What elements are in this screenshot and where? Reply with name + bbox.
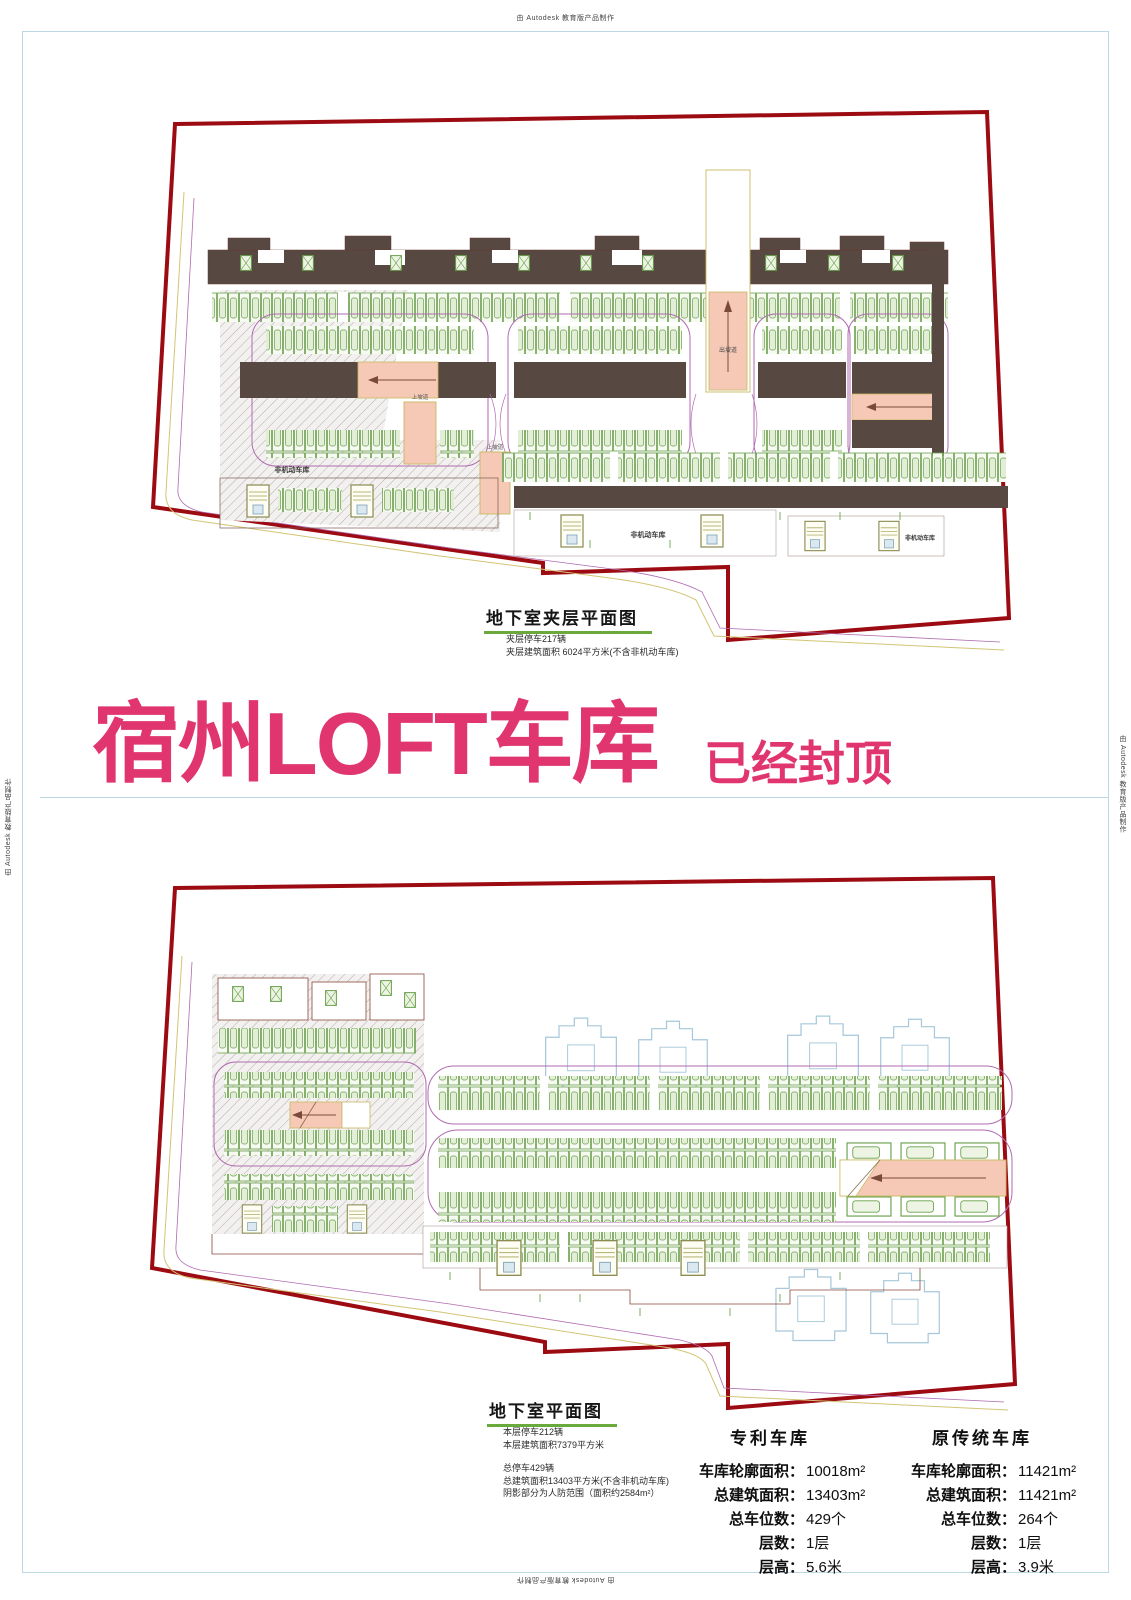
- frame-top-line: [22, 31, 1109, 32]
- autodesk-credit-top: 由 Autodesk 教育版产品制作: [0, 13, 1131, 23]
- stat-row: 总建筑面积： 11421m²: [856, 1484, 1108, 1508]
- stat-value: 264个: [1016, 1508, 1108, 1532]
- stat-label: 总建筑面积：: [856, 1484, 1016, 1508]
- basement-note-1: 本层停车212辆: [503, 1426, 604, 1439]
- stall-band-bottom: [423, 1226, 1007, 1304]
- stat-label: 层数：: [644, 1532, 804, 1556]
- project-banner-status: 已经封顶: [704, 740, 892, 787]
- parking-module-left: [240, 314, 496, 466]
- stat-label: 层高：: [644, 1556, 804, 1580]
- non-motor-label-1: 非机动车库: [275, 465, 310, 474]
- ramp-exit-label: 出坡道: [719, 346, 737, 354]
- stat-label: 总车位数：: [856, 1508, 1016, 1532]
- stall-row-lower: [502, 452, 1008, 508]
- basement-plan-drawing: [140, 862, 1030, 1412]
- stat-row: 层数： 1层: [856, 1532, 1108, 1556]
- traditional-garage-title: 原传统车库: [856, 1424, 1108, 1449]
- stat-row: 车库轮廓面积： 11421m²: [856, 1460, 1108, 1484]
- ramp-up-label-2: 上坡道: [487, 443, 504, 451]
- stat-value: 11421m²: [1016, 1484, 1108, 1508]
- basement-plan-title: 地下室平面图: [487, 1397, 617, 1427]
- stat-value: 11421m²: [1016, 1460, 1108, 1484]
- stat-row: 总车位数： 264个: [856, 1508, 1108, 1532]
- autodesk-credit-left: 由 Autodesk 教育版产品制作: [4, 706, 14, 876]
- autodesk-credit-right: 由 Autodesk 教育版产品制作: [1117, 735, 1127, 905]
- mezzanine-plan-drawing: 上坡道 上坡道 出坡道: [140, 100, 1030, 660]
- non-motor-label-3: 非机动车库: [905, 534, 935, 542]
- parking-module-center: [508, 314, 690, 466]
- stall-band-1: [428, 1066, 1012, 1124]
- left-stall-row-3: [224, 1174, 414, 1200]
- stat-label: 层高：: [856, 1556, 1016, 1580]
- traditional-garage-stats: 原传统车库 车库轮廓面积： 11421m² 总建筑面积： 11421m² 总车位…: [856, 1424, 1108, 1580]
- mezzanine-note-2: 夹层建筑面积 6024平方米(不含非机动车库): [506, 646, 679, 659]
- mezzanine-plan-title: 地下室夹层平面图: [484, 604, 652, 634]
- left-core-1: [242, 1205, 261, 1233]
- stat-label: 车库轮廓面积：: [856, 1460, 1016, 1484]
- stat-value: 1层: [1016, 1532, 1108, 1556]
- exit-ramp-corridor: [706, 170, 750, 392]
- frame-left-line: [22, 31, 23, 1572]
- ramp-up-label-1: 上坡道: [412, 393, 429, 401]
- parking-module-small: [754, 314, 850, 466]
- basement-note-2: 本层建筑面积7379平方米: [503, 1439, 604, 1452]
- stat-label: 层数：: [856, 1532, 1016, 1556]
- stall-row-top: [212, 292, 948, 322]
- left-core-2: [347, 1205, 366, 1233]
- drawing-page: 由 Autodesk 教育版产品制作 由 Autodesk 教育版产品制作 由 …: [0, 0, 1131, 1600]
- stat-label: 总建筑面积：: [644, 1484, 804, 1508]
- stat-label: 总车位数：: [644, 1508, 804, 1532]
- project-banner-title: 宿州LOFT车库: [92, 700, 658, 788]
- bottom-left-edge: [212, 1234, 424, 1254]
- stat-row: 层高： 3.9米: [856, 1556, 1108, 1580]
- frame-divider-line: [40, 797, 1108, 798]
- mezzanine-plan-notes: 夹层停车217辆 夹层建筑面积 6024平方米(不含非机动车库): [506, 633, 679, 658]
- frame-right-line: [1108, 31, 1109, 1572]
- basement-plan-notes: 本层停车212辆 本层建筑面积7379平方米: [503, 1426, 604, 1451]
- mezzanine-note-1: 夹层停车217辆: [506, 633, 679, 646]
- green-ticks-2: [450, 1272, 920, 1316]
- stat-value: 3.9米: [1016, 1556, 1108, 1580]
- non-motor-label-2: 非机动车库: [631, 530, 666, 539]
- stat-label: 车库轮廓面积：: [644, 1460, 804, 1484]
- left-stall-row-0: [218, 1028, 416, 1054]
- stall-band-2: [428, 1130, 1012, 1222]
- left-stall-bit: [272, 1206, 338, 1232]
